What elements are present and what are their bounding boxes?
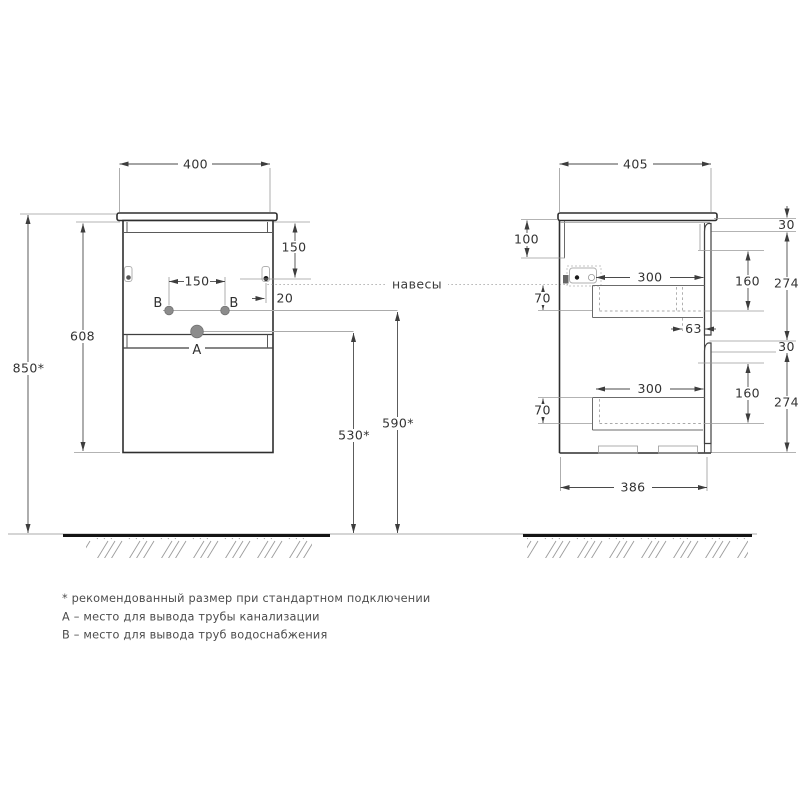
side-drawer-front-lower — [705, 343, 712, 444]
dim-inner-height-lower: 160 — [735, 386, 760, 401]
dim-front-panel-upper: 274 — [774, 276, 799, 291]
dim-front-width: 400 — [183, 157, 208, 172]
hinge-icon-left — [125, 267, 133, 282]
dim-bottom-depth: 386 — [620, 480, 645, 495]
floor-hatching-left — [86, 538, 312, 558]
label-water-right: B — [229, 296, 238, 311]
side-countertop — [558, 213, 717, 221]
water-outlet-point-left — [165, 306, 174, 315]
floor — [8, 534, 757, 558]
dim-drawer-depth-lower: 300 — [637, 381, 662, 396]
front-countertop — [117, 213, 277, 221]
hinge-plate-icon — [563, 266, 601, 286]
dim-water-from-floor: 590* — [382, 416, 414, 431]
water-outlet-point-right — [221, 306, 230, 315]
side-view: 405 100 70 300 63 70 — [512, 157, 800, 495]
dim-drain-from-floor: 530* — [338, 428, 370, 443]
footnote-recommended-size: * рекомендованный размер при стандартном… — [62, 592, 430, 605]
footnotes: * рекомендованный размер при стандартном… — [62, 592, 430, 642]
diagram-canvas: B B A 400 608 850* 1 — [0, 0, 800, 800]
front-cabinet: B B A — [117, 213, 398, 453]
side-drawer-front-upper — [705, 224, 712, 336]
footnote-drain-outlet: A – место для вывода трубы канализации — [62, 611, 320, 624]
hinges-annotation: навесы — [268, 276, 569, 292]
dim-drawer-depth-upper: 300 — [637, 270, 662, 285]
side-dimensions: 405 100 70 300 63 70 — [512, 157, 800, 495]
dim-hinge-from-top: 150 — [281, 240, 306, 255]
hinges-label: навесы — [392, 277, 442, 292]
dim-front-panel-lower: 274 — [774, 395, 799, 410]
label-water-left: B — [153, 296, 162, 311]
bottom-block-left — [599, 446, 638, 453]
installation-diagram: B B A 400 608 850* 1 — [0, 0, 800, 800]
footnote-water-outlet: B – место для вывода труб водоснабжения — [62, 629, 327, 642]
dim-drawer-height-upper: 70 — [534, 291, 551, 306]
front-view: B B A 400 608 850* 1 — [13, 157, 414, 534]
dim-mount-height: 850* — [13, 361, 45, 376]
dim-front-top-gap-upper: 30 — [778, 217, 795, 232]
dim-drawer-height-lower: 70 — [534, 403, 551, 418]
drain-outlet-point — [191, 325, 204, 338]
bottom-block-right — [659, 446, 698, 453]
drawer-box-lower — [593, 398, 705, 431]
floor-hatching-right — [527, 538, 748, 558]
dim-front-height: 608 — [70, 329, 95, 344]
dim-inner-height-upper: 160 — [735, 274, 760, 289]
dim-drawer-clearance: 63 — [685, 321, 702, 336]
label-drain: A — [192, 343, 201, 358]
dim-hinge-inset: 20 — [277, 291, 294, 306]
dim-back-rail: 100 — [514, 232, 539, 247]
dim-water-spacing: 150 — [184, 274, 209, 289]
dim-side-depth: 405 — [623, 157, 648, 172]
dim-front-top-gap-lower: 30 — [778, 339, 795, 354]
